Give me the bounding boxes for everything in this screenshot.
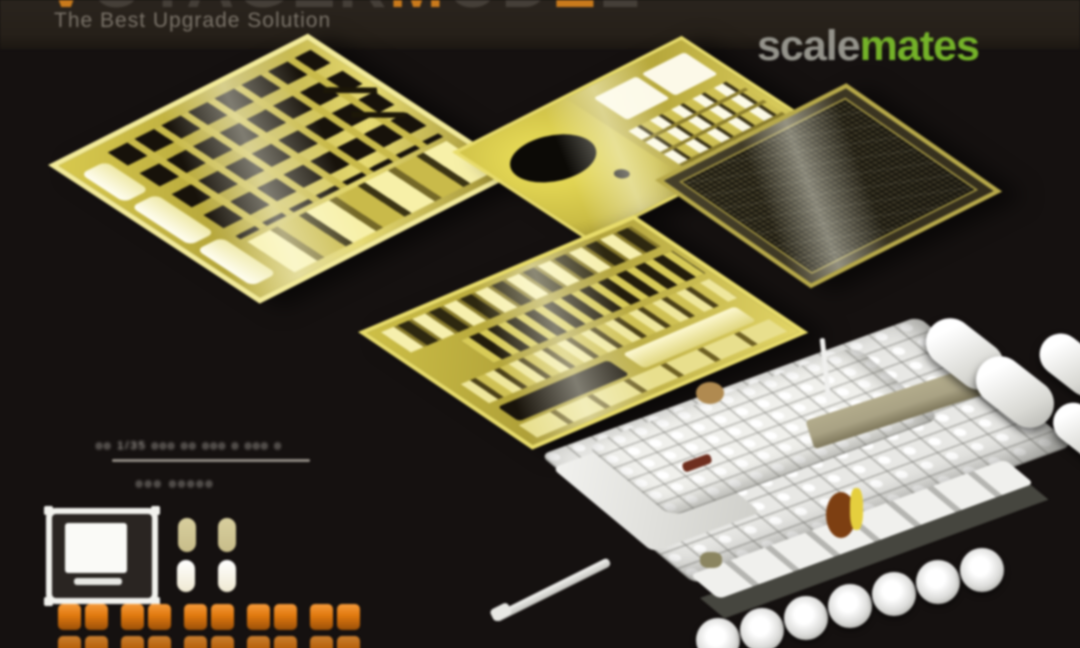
orange-chip	[310, 604, 333, 630]
orange-chip	[337, 604, 360, 630]
pe-monitor-frame-part	[46, 508, 158, 604]
road-wheel	[740, 608, 784, 648]
orange-chip	[247, 636, 270, 648]
orange-chip	[121, 604, 144, 630]
monitor-base	[74, 578, 122, 585]
yellow-accent-part	[850, 488, 863, 530]
orange-chip-group	[58, 636, 108, 648]
orange-chip-group	[247, 604, 297, 630]
orange-chip-group	[121, 604, 171, 630]
olive-accent-part	[700, 552, 722, 568]
orange-chip	[148, 604, 171, 630]
orange-chip-group	[58, 604, 108, 630]
promo-image: VOYAGERMODEL The Best Upgrade Solution	[0, 0, 1080, 648]
scalemates-watermark: scalemates	[757, 22, 979, 71]
orange-chip-group	[121, 636, 171, 648]
road-wheel	[784, 596, 828, 640]
orange-chip	[148, 636, 171, 648]
orange-chip	[184, 636, 207, 648]
orange-chip	[310, 636, 333, 648]
divider-line	[112, 459, 310, 462]
orange-chip-group	[247, 636, 297, 648]
orange-chip-row	[58, 636, 360, 648]
corner-tab	[151, 506, 160, 515]
pe-capsule-part	[218, 518, 236, 552]
scene: VOYAGERMODEL The Best Upgrade Solution	[0, 0, 1080, 648]
corner-tab	[44, 506, 53, 515]
orange-chip-row	[58, 604, 360, 630]
monitor-screen	[65, 523, 127, 573]
orange-chip-group	[310, 604, 360, 630]
orange-chip	[85, 636, 108, 648]
orange-chip	[58, 604, 81, 630]
tan-accent-part	[696, 382, 724, 404]
gun-muzzle	[489, 602, 513, 623]
watermark-mates-text: mates	[860, 22, 979, 70]
orange-chip	[247, 604, 270, 630]
orange-chip-group	[184, 604, 234, 630]
road-wheel	[872, 572, 916, 616]
road-wheel	[916, 560, 960, 604]
orange-chip	[121, 636, 144, 648]
road-wheel	[828, 584, 872, 628]
spec-text-line: oo 1/35 ooo oo ooo o ooo o	[96, 440, 283, 452]
code-text-line: ooo ooooo	[136, 478, 215, 490]
pe-capsule-part	[177, 560, 195, 592]
orange-chip	[211, 636, 234, 648]
orange-chip	[85, 604, 108, 630]
corner-tab	[44, 597, 53, 606]
tank-render	[0, 0, 1080, 648]
orange-chip-rows	[58, 604, 360, 648]
orange-chip	[337, 636, 360, 648]
pe-capsule-part	[218, 560, 236, 592]
orange-chip-group	[310, 636, 360, 648]
orange-chip	[184, 604, 207, 630]
road-wheel	[696, 618, 740, 648]
orange-chip-group	[184, 636, 234, 648]
watermark-scale-text: scale	[757, 22, 860, 70]
pe-capsule-part	[178, 518, 196, 552]
orange-chip	[274, 604, 297, 630]
orange-chip	[58, 636, 81, 648]
orange-chip	[211, 604, 234, 630]
orange-chip	[274, 636, 297, 648]
road-wheel	[960, 548, 1004, 592]
